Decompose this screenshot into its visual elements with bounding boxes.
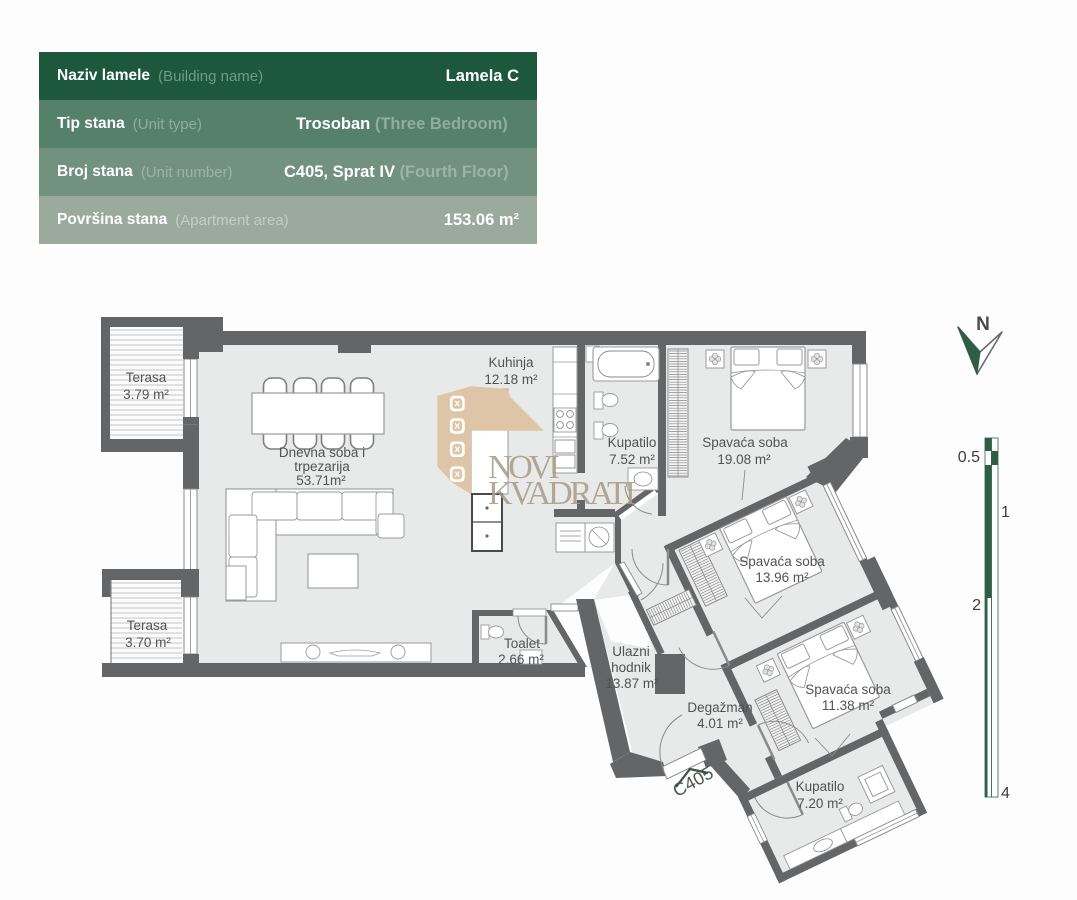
svg-text:Kuhinja: Kuhinja — [488, 355, 534, 370]
svg-text:4.01 m²: 4.01 m² — [697, 716, 743, 731]
svg-text:Terasa: Terasa — [127, 618, 168, 633]
svg-text:12.18 m²: 12.18 m² — [484, 372, 538, 387]
svg-text:13.87 m²: 13.87 m² — [605, 676, 659, 691]
svg-text:53.71m²: 53.71m² — [296, 473, 346, 488]
svg-text:11.38 m²: 11.38 m² — [822, 698, 875, 713]
svg-text:7.52 m²: 7.52 m² — [609, 452, 655, 467]
svg-text:Ulazni: Ulazni — [612, 644, 650, 659]
svg-text:trpezarija: trpezarija — [294, 459, 350, 474]
svg-text:4: 4 — [1001, 785, 1010, 802]
svg-text:0.5: 0.5 — [958, 449, 980, 466]
svg-text:1: 1 — [1001, 504, 1010, 521]
svg-text:3.79 m²: 3.79 m² — [123, 387, 169, 402]
svg-text:Spavaća soba: Spavaća soba — [739, 554, 825, 569]
svg-text:Kupatilo: Kupatilo — [608, 435, 657, 450]
svg-text:2: 2 — [972, 597, 981, 614]
svg-text:7.20 m²: 7.20 m² — [797, 796, 843, 811]
svg-text:hodnik: hodnik — [611, 660, 651, 675]
svg-text:2.66 m²: 2.66 m² — [498, 652, 544, 667]
svg-text:Spavaća soba: Spavaća soba — [702, 435, 788, 450]
svg-text:Degažman: Degažman — [687, 700, 752, 715]
svg-text:3.70 m²: 3.70 m² — [125, 635, 171, 650]
svg-text:Kupatilo: Kupatilo — [796, 779, 845, 794]
svg-text:Toalet: Toalet — [504, 636, 540, 651]
svg-text:13.96 m²: 13.96 m² — [755, 570, 809, 585]
svg-text:Spavaća soba: Spavaća soba — [805, 682, 891, 697]
svg-text:N: N — [976, 314, 990, 335]
svg-text:Dnevna soba i: Dnevna soba i — [279, 445, 365, 460]
svg-text:KVADRATI: KVADRATI — [488, 475, 636, 512]
svg-text:Terasa: Terasa — [126, 370, 167, 385]
svg-text:19.08 m²: 19.08 m² — [717, 452, 771, 467]
